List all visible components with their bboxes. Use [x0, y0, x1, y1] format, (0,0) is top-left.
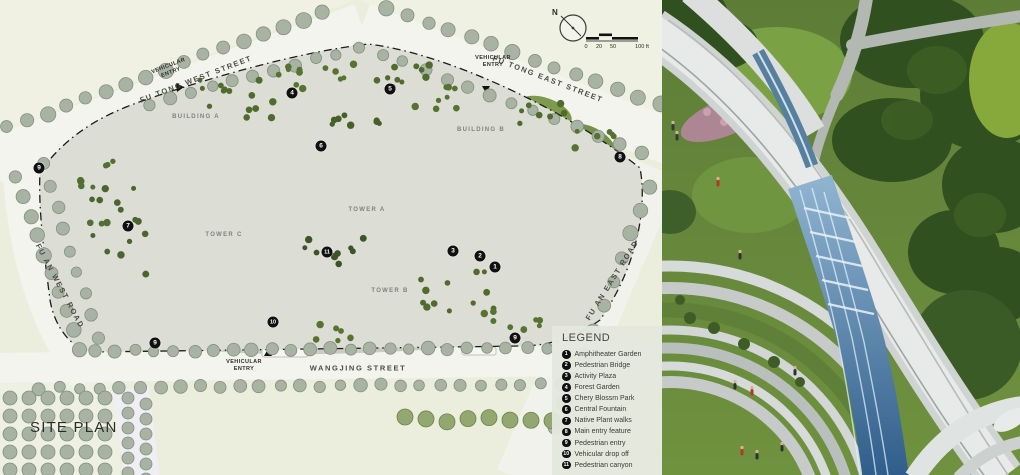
legend-number-badge: 8: [562, 428, 571, 437]
tower-c-label: TOWER C: [205, 232, 242, 238]
aerial-photo-panel: [662, 0, 1020, 475]
tower-b-label: TOWER B: [371, 288, 408, 294]
plan-marker-9: 9: [150, 338, 161, 349]
site-plan-panel: FU TONG WEST STREET FU TONG EAST STREET …: [0, 0, 662, 475]
legend-number-badge: 6: [562, 405, 571, 414]
legend-number-badge: 9: [562, 439, 571, 448]
legend-item-label: Native Plant walks: [575, 417, 632, 424]
plan-marker-1: 1: [490, 262, 501, 273]
legend-number-badge: 1: [562, 350, 571, 359]
legend-number-badge: 7: [562, 417, 571, 426]
legend-item-label: Amphitheater Garden: [575, 351, 642, 358]
aerial-photo: [662, 0, 1020, 475]
legend-item-label: Pedestrian canyon: [575, 462, 633, 469]
plan-marker-8: 8: [615, 152, 626, 163]
vehicular-entry-label-top-right: VEHICULAR ENTRY: [475, 55, 511, 69]
legend-panel: LEGEND 1Amphitheater Garden2Pedestrian B…: [552, 326, 662, 475]
legend-item-8: 8Main entry feature: [562, 428, 662, 437]
north-arrow-icon: [560, 15, 586, 41]
legend-item-label: Forest Garden: [575, 384, 620, 391]
plan-marker-10: 10: [268, 317, 279, 328]
legend-item-3: 3Activity Plaza: [562, 372, 662, 381]
legend-item-label: Vehicular drop off: [575, 451, 629, 458]
legend-number-badge: 10: [562, 450, 571, 459]
plan-marker-11: 11: [322, 247, 333, 258]
legend-item-5: 5Chery Blossm Park: [562, 394, 662, 403]
north-letter: N: [552, 8, 558, 17]
slide-stage: FU TONG WEST STREET FU TONG EAST STREET …: [0, 0, 1020, 475]
legend-item-label: Pedestrian entry: [575, 440, 626, 447]
legend-item-label: Activity Plaza: [575, 373, 617, 380]
legend-item-7: 7Native Plant walks: [562, 417, 662, 426]
legend-item-2: 2Pedestrian Bridge: [562, 361, 662, 370]
building-b-label: BUILDING B: [457, 127, 505, 133]
page-title: SITE PLAN: [30, 419, 118, 436]
legend-item-10: 10Vehicular drop off: [562, 450, 662, 459]
plan-marker-9: 9: [510, 333, 521, 344]
legend-item-4: 4Forest Garden: [562, 383, 662, 392]
legend-number-badge: 2: [562, 361, 571, 370]
plan-marker-4: 4: [287, 88, 298, 99]
legend-number-badge: 5: [562, 394, 571, 403]
plan-marker-7: 7: [123, 221, 134, 232]
legend-items: 1Amphitheater Garden2Pedestrian Bridge3A…: [562, 350, 662, 469]
legend-item-6: 6Central Fountain: [562, 405, 662, 414]
legend-title: LEGEND: [562, 332, 662, 344]
building-a-label: BUILDING A: [172, 114, 220, 120]
legend-number-badge: 4: [562, 383, 571, 392]
legend-item-label: Central Fountain: [575, 406, 627, 413]
tower-a-label: TOWER A: [348, 207, 385, 213]
legend-item-label: Pedestrian Bridge: [575, 362, 631, 369]
legend-item-label: Main entry feature: [575, 428, 631, 435]
legend-item-9: 9Pedestrian entry: [562, 439, 662, 448]
scale-tick-50: 50: [610, 44, 616, 50]
street-label-wangjing: WANGJING STREET: [310, 364, 407, 373]
plan-marker-5: 5: [385, 84, 396, 95]
plan-marker-3: 3: [448, 246, 459, 257]
plan-marker-6: 6: [316, 141, 327, 152]
scale-tick-100: 100 ft: [635, 44, 649, 50]
plan-marker-9: 9: [34, 163, 45, 174]
plan-marker-2: 2: [475, 251, 486, 262]
vehicular-entry-label-bottom: VEHICULAR ENTRY: [226, 359, 262, 373]
legend-item-1: 1Amphitheater Garden: [562, 350, 662, 359]
legend-item-label: Chery Blossm Park: [575, 395, 635, 402]
legend-number-badge: 3: [562, 372, 571, 381]
legend-number-badge: 11: [562, 461, 571, 470]
scale-tick-0: 0: [584, 44, 587, 50]
legend-item-11: 11Pedestrian canyon: [562, 461, 662, 470]
scale-tick-20: 20: [596, 44, 602, 50]
